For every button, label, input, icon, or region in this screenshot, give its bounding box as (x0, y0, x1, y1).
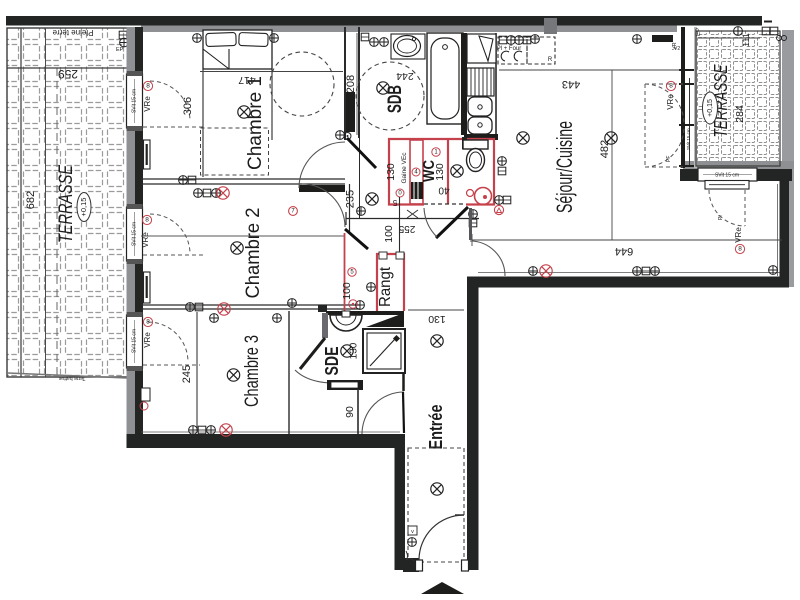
svg-text:208: 208 (345, 75, 357, 93)
svg-text:EP: EP (696, 28, 702, 36)
svg-text:SVit 15 cm: SVit 15 cm (686, 128, 691, 150)
svg-text:130: 130 (434, 163, 446, 181)
svg-text:Chambre 3: Chambre 3 (242, 335, 263, 407)
svg-text:245: 245 (181, 365, 193, 383)
svg-text:259: 259 (58, 67, 78, 81)
svg-text:v: v (411, 529, 414, 535)
svg-text:244: 244 (396, 70, 414, 82)
svg-text:EP: EP (116, 47, 124, 53)
svg-text:SDB: SDB (385, 85, 406, 113)
svg-text:644: 644 (615, 245, 633, 257)
svg-text:VRe: VRe (143, 96, 152, 112)
svg-text:SVit 15 cm: SVit 15 cm (131, 329, 137, 353)
svg-text:Pleine terre: Pleine terre (52, 28, 93, 37)
svg-text:8: 8 (738, 246, 742, 253)
svg-text:V2: V2 (674, 46, 680, 52)
svg-text:90: 90 (344, 406, 356, 418)
svg-text:482: 482 (599, 140, 611, 158)
svg-text:R: R (548, 57, 553, 63)
svg-text:5: 5 (392, 198, 397, 207)
svg-text:Entrée: Entrée (426, 405, 446, 450)
svg-text:VRe: VRe (666, 94, 675, 110)
svg-text:100: 100 (341, 282, 353, 300)
svg-text:284: 284 (734, 105, 746, 123)
svg-text:255: 255 (398, 223, 415, 234)
svg-text:+0,15: +0,15 (79, 198, 88, 217)
svg-text:130: 130 (428, 313, 446, 325)
svg-text:130: 130 (349, 342, 360, 359)
svg-text:VRe: VRe (141, 232, 150, 248)
svg-text:Chambre 1: Chambre 1 (245, 76, 266, 170)
svg-text:8: 8 (146, 83, 150, 90)
svg-text:Rangt: Rangt (377, 266, 394, 307)
svg-text:+0,15: +0,15 (707, 99, 714, 117)
svg-text:VRe: VRe (143, 332, 152, 348)
svg-text:8: 8 (669, 83, 673, 90)
svg-text:SDE: SDE (322, 347, 342, 376)
svg-text:SVit 15 cm: SVit 15 cm (715, 172, 739, 178)
svg-text:8: 8 (145, 217, 149, 224)
svg-text:306: 306 (182, 97, 194, 115)
svg-text:Pf: Pf (718, 215, 724, 220)
svg-text:40: 40 (438, 184, 450, 195)
svg-text:682: 682 (25, 191, 37, 209)
svg-text:SVit 15 cm: SVit 15 cm (131, 222, 137, 246)
svg-text:TERRASSE: TERRASSE (56, 165, 77, 243)
svg-text:Gaine VEc: Gaine VEc (401, 152, 408, 184)
svg-text:Séjour/Cuisine: Séjour/Cuisine (552, 121, 577, 213)
svg-text:SVit 15 cm: SVit 15 cm (131, 89, 137, 113)
svg-text:Terre battue: Terre battue (58, 375, 85, 381)
svg-text:111: 111 (741, 33, 751, 47)
svg-text:130: 130 (385, 163, 397, 181)
svg-text:443: 443 (562, 78, 580, 90)
svg-text:235: 235 (345, 190, 357, 208)
svg-text:Chambre 2: Chambre 2 (243, 208, 264, 299)
svg-text:100: 100 (383, 225, 395, 243)
